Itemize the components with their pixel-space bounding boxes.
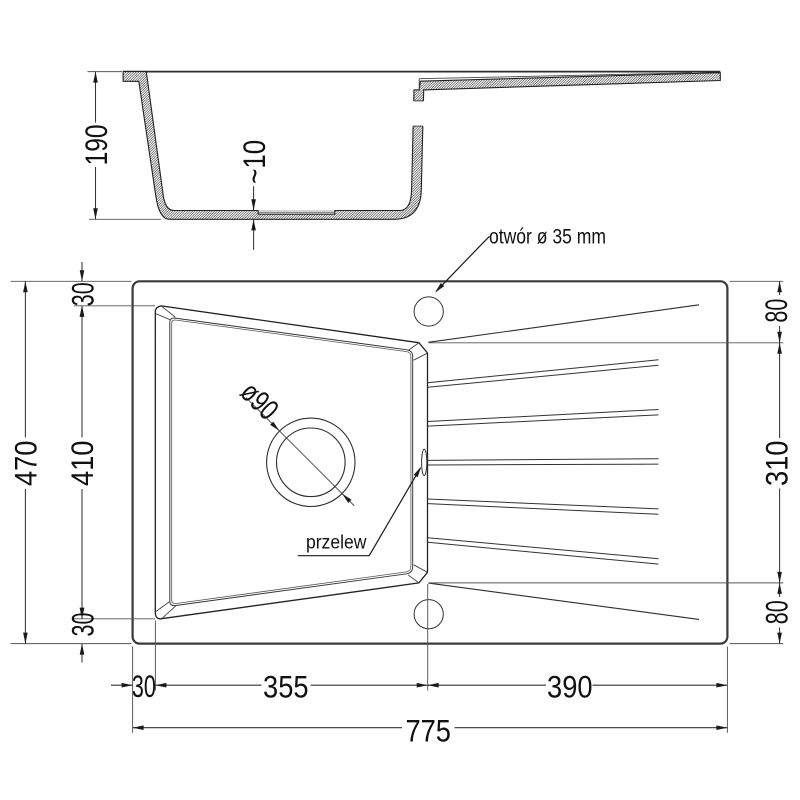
svg-text:~10: ~10 <box>236 140 272 184</box>
svg-text:30: 30 <box>65 613 101 637</box>
svg-text:80: 80 <box>758 299 794 323</box>
svg-text:390: 390 <box>547 669 593 705</box>
svg-text:190: 190 <box>78 124 114 165</box>
svg-text:410: 410 <box>64 441 100 487</box>
svg-text:310: 310 <box>758 441 794 487</box>
svg-text:470: 470 <box>7 441 43 487</box>
svg-text:przelew: przelew <box>306 532 367 554</box>
svg-text:355: 355 <box>263 669 309 705</box>
svg-text:80: 80 <box>758 600 794 624</box>
svg-text:775: 775 <box>405 712 451 748</box>
svg-text:otwór ø 35 mm: otwór ø 35 mm <box>489 225 606 249</box>
svg-text:30: 30 <box>65 282 101 306</box>
svg-text:30: 30 <box>132 668 156 704</box>
